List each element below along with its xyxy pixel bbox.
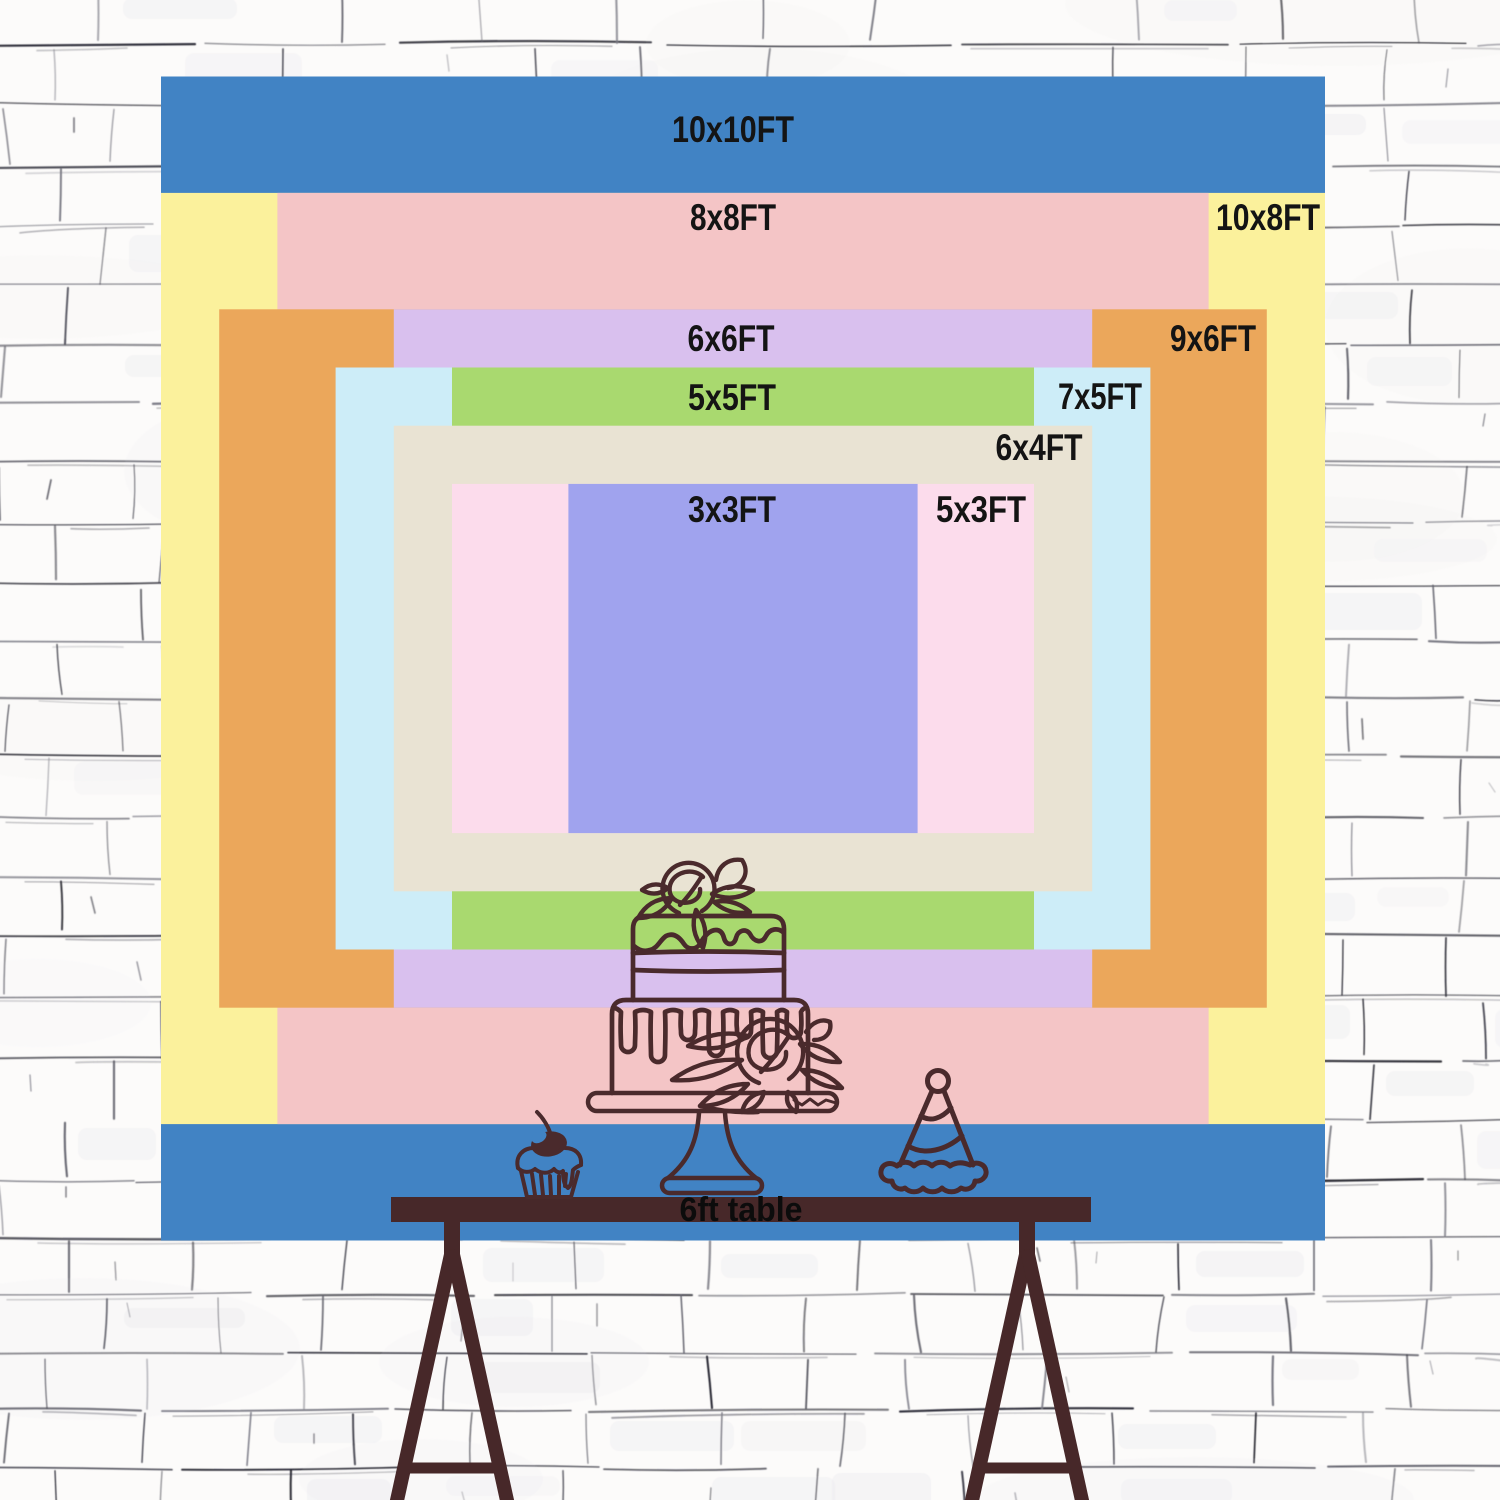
svg-text:9x6FT: 9x6FT <box>1170 318 1256 359</box>
svg-text:6ft table: 6ft table <box>680 1191 803 1229</box>
svg-text:5x5FT: 5x5FT <box>688 377 776 418</box>
svg-text:6x4FT: 6x4FT <box>996 427 1083 468</box>
svg-text:7x5FT: 7x5FT <box>1058 376 1142 417</box>
svg-text:6x6FT: 6x6FT <box>688 318 775 359</box>
svg-text:5x3FT: 5x3FT <box>936 489 1026 530</box>
svg-text:3x3FT: 3x3FT <box>688 489 776 530</box>
svg-text:8x8FT: 8x8FT <box>690 197 776 238</box>
svg-text:10x8FT: 10x8FT <box>1216 197 1320 238</box>
svg-text:10x10FT: 10x10FT <box>672 109 794 150</box>
